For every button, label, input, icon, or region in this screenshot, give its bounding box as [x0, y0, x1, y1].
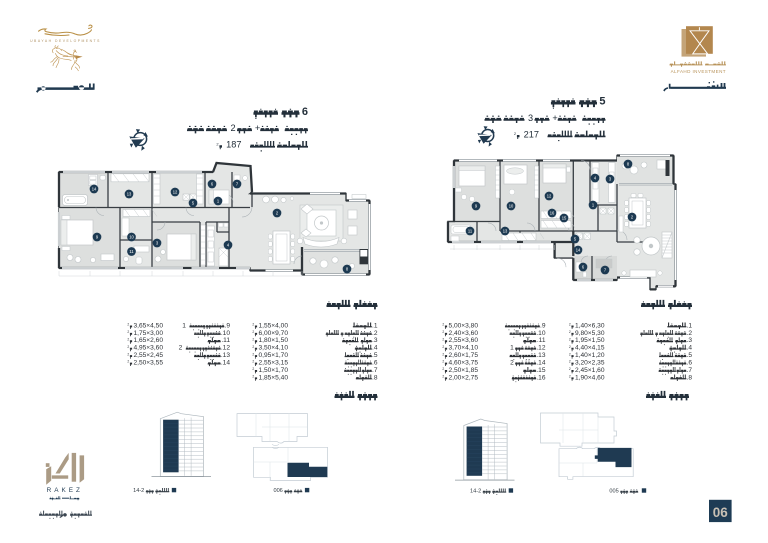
svg-text:13: 13: [127, 192, 132, 197]
svg-text:2,55×3,15: 2,55×3,15: [258, 360, 288, 367]
svg-text:.6: .6: [687, 360, 693, 367]
svg-text:217: 217: [524, 129, 539, 139]
svg-text:2: 2: [569, 345, 571, 349]
svg-text:1,40×6,30: 1,40×6,30: [575, 322, 605, 329]
svg-text:1,95×1,50: 1,95×1,50: [575, 337, 605, 344]
svg-text:0,95×1,70: 0,95×1,70: [258, 352, 288, 359]
svg-text:2: 2: [569, 367, 571, 371]
svg-text:1,55×4,00: 1,55×4,00: [258, 322, 288, 329]
svg-text:1,85×5,40: 1,85×5,40: [258, 374, 288, 381]
svg-text:2: 2: [127, 352, 129, 356]
svg-text:2: 2: [569, 360, 571, 364]
svg-text:.5: .5: [372, 352, 378, 359]
svg-text:.9: .9: [225, 322, 231, 329]
svg-text:.15: .15: [536, 367, 545, 374]
svg-text:.9: .9: [540, 322, 546, 329]
svg-text:2: 2: [510, 360, 514, 367]
svg-text:1,50×1,70: 1,50×1,70: [258, 367, 288, 374]
svg-text:ALFAHD INVESTMENT: ALFAHD INVESTMENT: [671, 69, 726, 74]
svg-text:2,40×3,60: 2,40×3,60: [448, 330, 478, 337]
svg-text:.2: .2: [687, 330, 693, 337]
svg-text:11: 11: [129, 249, 134, 254]
svg-text:.1: .1: [687, 322, 693, 329]
svg-text:+: +: [552, 113, 557, 123]
svg-text:2: 2: [442, 352, 444, 356]
svg-text:2,55×2,45: 2,55×2,45: [133, 352, 163, 359]
svg-text:006: 006: [273, 488, 282, 494]
svg-text:RAKEZ: RAKEZ: [47, 487, 83, 494]
svg-text:2: 2: [252, 375, 254, 379]
svg-text:.1: .1: [372, 322, 378, 329]
svg-text:2: 2: [514, 131, 516, 136]
svg-text:2,50×1,85: 2,50×1,85: [448, 367, 478, 374]
svg-text:10: 10: [509, 204, 514, 209]
svg-text:2: 2: [442, 323, 444, 327]
svg-text:13: 13: [503, 229, 508, 234]
svg-text:11: 11: [468, 229, 473, 234]
svg-text:2: 2: [442, 367, 444, 371]
svg-text:2: 2: [252, 360, 254, 364]
svg-text:14: 14: [92, 187, 97, 192]
svg-text:1,40×1,20: 1,40×1,20: [575, 352, 605, 359]
svg-text:2: 2: [127, 345, 129, 349]
svg-text:9,80×5,30: 9,80×5,30: [575, 330, 605, 337]
svg-text:3,50×4,10: 3,50×4,10: [258, 345, 288, 352]
svg-text:1: 1: [510, 345, 514, 352]
svg-text:2: 2: [252, 330, 254, 334]
svg-text:2,45×1,60: 2,45×1,60: [575, 367, 605, 374]
svg-text:.8: .8: [687, 374, 693, 381]
svg-text:14-2: 14-2: [133, 488, 144, 494]
svg-text:2: 2: [252, 367, 254, 371]
svg-text:.5: .5: [687, 352, 693, 359]
svg-text:3,65×4,50: 3,65×4,50: [133, 322, 163, 329]
svg-text:.4: .4: [687, 345, 693, 352]
svg-text:3,20×2,35: 3,20×2,35: [575, 360, 605, 367]
svg-text:1: 1: [182, 322, 186, 329]
svg-text:.4: .4: [372, 345, 378, 352]
svg-text:2,50×3,55: 2,50×3,55: [133, 360, 163, 367]
svg-text:2: 2: [442, 337, 444, 341]
svg-text:2: 2: [127, 323, 129, 327]
svg-text:3,70×4,10: 3,70×4,10: [448, 345, 478, 352]
svg-text:.3: .3: [687, 337, 693, 344]
svg-text:2,60×1,75: 2,60×1,75: [448, 352, 478, 359]
svg-text:4,40×4,15: 4,40×4,15: [575, 345, 605, 352]
svg-text:2: 2: [569, 375, 571, 379]
svg-text:15: 15: [562, 216, 567, 221]
svg-text:.12: .12: [221, 345, 230, 352]
svg-text:.11: .11: [537, 337, 546, 344]
svg-text:UBAYAH DEVELOPMENTS: UBAYAH DEVELOPMENTS: [30, 39, 101, 43]
svg-text:6,00×9,70: 6,00×9,70: [258, 330, 288, 337]
svg-text:06: 06: [713, 505, 729, 520]
svg-text:14: 14: [576, 248, 581, 253]
svg-text:.7: .7: [372, 367, 378, 374]
svg-text:2: 2: [442, 375, 444, 379]
svg-text:1,65×2,60: 1,65×2,60: [133, 337, 163, 344]
svg-text:.11: .11: [221, 337, 230, 344]
svg-text:1,80×1,50: 1,80×1,50: [258, 337, 288, 344]
svg-text:12: 12: [547, 194, 552, 199]
svg-text:.2: .2: [372, 330, 378, 337]
svg-text:2: 2: [127, 360, 129, 364]
svg-text:1,75×3,00: 1,75×3,00: [133, 330, 163, 337]
svg-text:3: 3: [528, 113, 533, 123]
svg-text:2: 2: [569, 352, 571, 356]
svg-text:2: 2: [216, 141, 218, 146]
svg-text:.12: .12: [536, 345, 545, 352]
svg-text:16: 16: [550, 211, 555, 216]
svg-text:6: 6: [302, 106, 308, 118]
svg-text:2: 2: [442, 360, 444, 364]
svg-text:+: +: [255, 123, 260, 133]
svg-text:5: 5: [599, 96, 605, 108]
svg-text:.10: .10: [221, 330, 230, 337]
svg-text:2: 2: [252, 345, 254, 349]
svg-text:12: 12: [173, 190, 178, 195]
svg-text:4,95×3,60: 4,95×3,60: [133, 345, 163, 352]
svg-text:2: 2: [127, 337, 129, 341]
svg-text:2: 2: [569, 323, 571, 327]
svg-text:.7: .7: [687, 367, 693, 374]
svg-text:2: 2: [569, 337, 571, 341]
svg-text:.3: .3: [372, 337, 378, 344]
svg-text:2: 2: [442, 330, 444, 334]
svg-text:2: 2: [442, 345, 444, 349]
svg-text:2,00×2,75: 2,00×2,75: [448, 374, 478, 381]
svg-text:.8: .8: [372, 374, 378, 381]
svg-text:187: 187: [226, 140, 241, 150]
svg-text:14-2: 14-2: [470, 489, 481, 495]
svg-text:1,90×4,60: 1,90×4,60: [575, 374, 605, 381]
svg-text:.13: .13: [221, 352, 230, 359]
svg-text:2: 2: [252, 323, 254, 327]
svg-text:.13: .13: [536, 352, 545, 359]
svg-text:2: 2: [230, 123, 235, 133]
svg-text:.14: .14: [536, 360, 545, 367]
svg-text:4,60×3,75: 4,60×3,75: [448, 360, 478, 367]
svg-text:2: 2: [252, 352, 254, 356]
svg-text:2: 2: [569, 330, 571, 334]
svg-text:2,55×3,60: 2,55×3,60: [448, 337, 478, 344]
svg-text:.16: .16: [536, 374, 545, 381]
svg-text:.10: .10: [536, 330, 545, 337]
svg-text:2: 2: [252, 337, 254, 341]
svg-text:10: 10: [129, 235, 134, 240]
svg-text:5,00×3,80: 5,00×3,80: [448, 322, 478, 329]
svg-text:.6: .6: [372, 360, 378, 367]
svg-text:.14: .14: [221, 360, 230, 367]
svg-text:2: 2: [127, 330, 129, 334]
svg-text:2: 2: [179, 345, 183, 352]
svg-text:005: 005: [609, 489, 618, 495]
